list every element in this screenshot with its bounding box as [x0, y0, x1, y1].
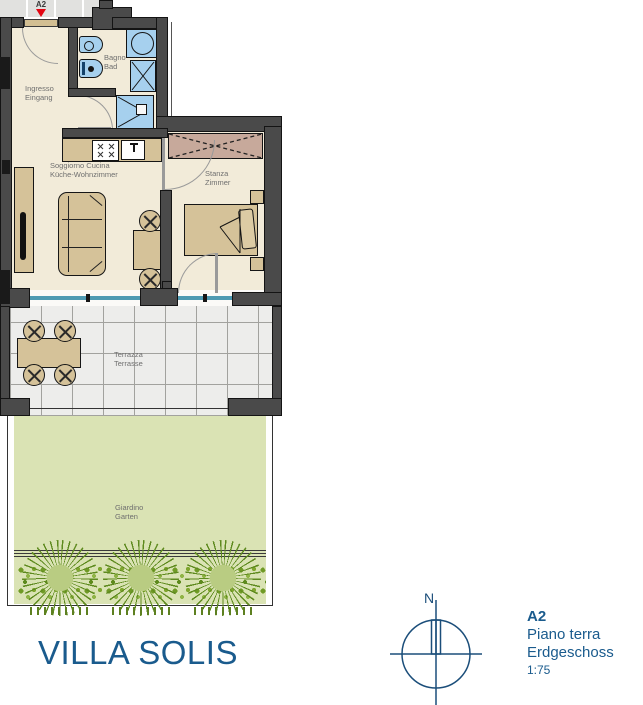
info-scale: 1:75 — [527, 662, 614, 678]
grass-hatch — [194, 607, 252, 615]
room-label-bagno: Bagno Bad — [104, 53, 126, 71]
label-line: Garten — [115, 512, 143, 521]
chair — [139, 268, 161, 290]
label-line: Ingresso — [25, 84, 54, 93]
pillar-stub — [162, 281, 172, 289]
blanket-fold — [214, 205, 258, 262]
terrace-wall — [0, 306, 10, 402]
room-label-stanza: Stanza Zimmer — [205, 169, 230, 187]
label-line: Eingang — [25, 93, 54, 102]
bush — [103, 540, 179, 616]
label-line: Bagno — [104, 53, 126, 62]
window-glazing — [30, 296, 140, 300]
floor-plan-sheet: A2 — [0, 0, 643, 705]
wall — [160, 190, 172, 295]
plan-info-block: A2 Piano terra Erdgeschoss 1:75 — [527, 608, 614, 678]
toilet — [79, 59, 103, 78]
sofa-back-line — [68, 196, 69, 272]
burner-icon — [106, 151, 116, 158]
info-floor-it: Piano terra — [527, 626, 614, 644]
info-floor-de: Erdgeschoss — [527, 644, 614, 662]
kitchen-sink — [121, 140, 145, 160]
terrace-chair — [23, 320, 45, 342]
unit-pointer-icon — [36, 9, 46, 17]
nightstand — [250, 190, 264, 204]
wall — [68, 27, 78, 92]
label-line: Terrasse — [114, 359, 143, 368]
room-label-terrazza: Terrazza Terrasse — [114, 350, 143, 368]
grass-hatch — [30, 607, 88, 615]
label-line: Bad — [104, 62, 126, 71]
wall-accent — [2, 160, 10, 174]
tv — [20, 212, 26, 260]
wall — [156, 17, 168, 122]
wall — [62, 128, 168, 138]
pillar — [0, 398, 30, 416]
terrace-wall — [272, 306, 282, 402]
bidet — [79, 36, 103, 53]
shower-x-lines — [131, 61, 155, 91]
compass-icon — [390, 598, 486, 705]
info-unit: A2 — [527, 608, 614, 626]
label-line: Giardino — [115, 503, 143, 512]
wall — [264, 126, 282, 306]
room-label-soggiorno: Soggiorno Cucina Küche-Wohnzimmer — [50, 161, 118, 179]
terrace-chair — [23, 364, 45, 386]
pillar — [232, 292, 282, 306]
bedroom-door-panel — [162, 138, 165, 192]
room-label-ingresso: Ingresso Eingang — [25, 84, 54, 102]
label-line: Soggiorno Cucina — [50, 161, 118, 170]
unit-marker: A2 — [29, 0, 53, 17]
duct-stub — [99, 0, 113, 9]
small-table — [133, 230, 163, 270]
entrance-door-sill — [24, 19, 58, 27]
stove — [92, 140, 119, 161]
terrace-table — [17, 338, 81, 368]
burner-icon — [95, 151, 105, 158]
terrace-chair — [54, 364, 76, 386]
label-line: Terrazza — [114, 350, 143, 359]
label-line: Küche-Wohnzimmer — [50, 170, 118, 179]
wall-accent — [0, 270, 10, 304]
terrace-door-panel — [215, 253, 218, 293]
window-tick — [203, 294, 207, 302]
shower-funnel-lines — [117, 96, 153, 128]
unit-boundary-line — [171, 22, 172, 122]
label-line: Stanza — [205, 169, 230, 178]
label-line: Zimmer — [205, 178, 230, 187]
grass-hatch — [112, 607, 170, 615]
shower-drain — [136, 104, 147, 115]
corner-shower — [116, 95, 154, 129]
chair — [139, 210, 161, 232]
pillar — [140, 288, 178, 306]
wall — [68, 88, 116, 97]
shower-tray — [130, 60, 156, 92]
room-label-giardino: Giardino Garten — [115, 503, 143, 521]
pillar — [228, 398, 282, 416]
project-title: VILLA SOLIS — [38, 634, 238, 672]
washbasin-bowl — [131, 32, 154, 55]
burner-icon — [106, 143, 116, 150]
burner-icon — [95, 143, 105, 150]
window-tick — [86, 294, 90, 302]
bush — [185, 540, 261, 616]
terrace-chair — [54, 320, 76, 342]
bush — [22, 540, 98, 616]
wall-accent — [0, 57, 10, 89]
unit-marker-label: A2 — [36, 0, 46, 9]
